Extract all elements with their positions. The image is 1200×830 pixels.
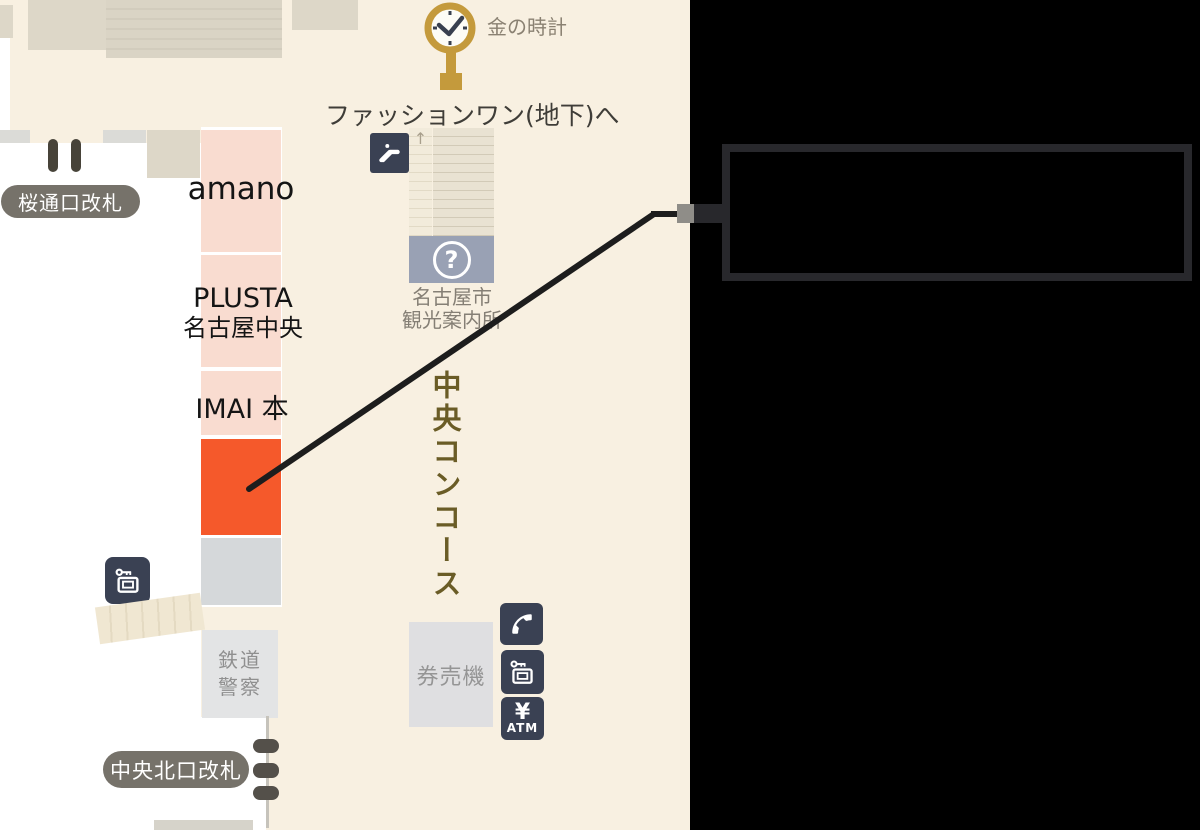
amano-label: amano (176, 170, 306, 208)
structure-block (28, 0, 112, 50)
atm-yen-glyph: ¥ (515, 703, 530, 722)
sakura-dori-gate-badge: 桜通口改札 (1, 185, 140, 218)
structure-block (0, 5, 13, 38)
stairs-steps (433, 128, 494, 236)
sakura-dori-gate-label: 桜通口改札 (18, 187, 123, 216)
callout-box (722, 144, 1192, 281)
central-concourse-label: 中央コンコース (424, 370, 466, 605)
central-north-gate-badge: 中央北口改札 (103, 751, 249, 788)
phone-icon (500, 603, 543, 645)
wall-segment (154, 820, 253, 830)
redacted-panel (690, 0, 1200, 830)
railway-police-label: 鉄道 警察 (218, 647, 262, 701)
ticket-machine-label: 券売機 (416, 659, 485, 691)
tourist-info-box: ? (409, 236, 494, 283)
gold-clock-base (440, 73, 462, 90)
gold-clock-post (446, 50, 456, 74)
fashion-one-label: ファッションワン(地下)へ (325, 96, 620, 132)
atm-text: ATM (507, 722, 538, 735)
station-map-screenshot: 桜通口改札 金の時計 ファッションワン(地下)へ (0, 0, 1200, 830)
platform-edge (103, 130, 146, 143)
platform-edge (0, 130, 30, 143)
central-north-gate-label: 中央北口改札 (110, 755, 242, 785)
structure-block-striped (106, 0, 282, 58)
floor-white-sliver (0, 38, 10, 133)
atm-icon: ¥ ATM (501, 697, 544, 740)
station-floor-map: 桜通口改札 金の時計 ファッションワン(地下)へ (0, 0, 690, 830)
ticket-machine-box: 券売機 (409, 622, 493, 727)
ticket-gate-pillar (253, 763, 279, 778)
ticket-gate-pillar (253, 739, 279, 753)
railway-police-box: 鉄道 警察 (202, 630, 278, 718)
gold-clock-label: 金の時計 (487, 11, 567, 40)
ticket-gate-pillar (253, 786, 279, 800)
ticket-gate-pillar (48, 139, 58, 172)
escalator-icon (370, 133, 409, 173)
tourist-info-label: 名古屋市 観光案内所 (390, 286, 514, 332)
imai-label: IMAI 本 (168, 389, 316, 423)
ticket-gate-pillar (71, 139, 81, 172)
coin-locker-icon (501, 650, 544, 694)
highlighted-shop-block (201, 439, 281, 535)
structure-block (292, 0, 358, 30)
gold-clock-icon (424, 2, 476, 54)
question-icon: ? (433, 241, 471, 279)
shop-block-gray (201, 538, 281, 605)
plusta-label: PLUSTA 名古屋中央 (161, 282, 325, 344)
floor-white-area (0, 143, 201, 830)
coin-locker-icon (105, 557, 150, 604)
stairs-up-arrow: ↑ (409, 129, 432, 148)
